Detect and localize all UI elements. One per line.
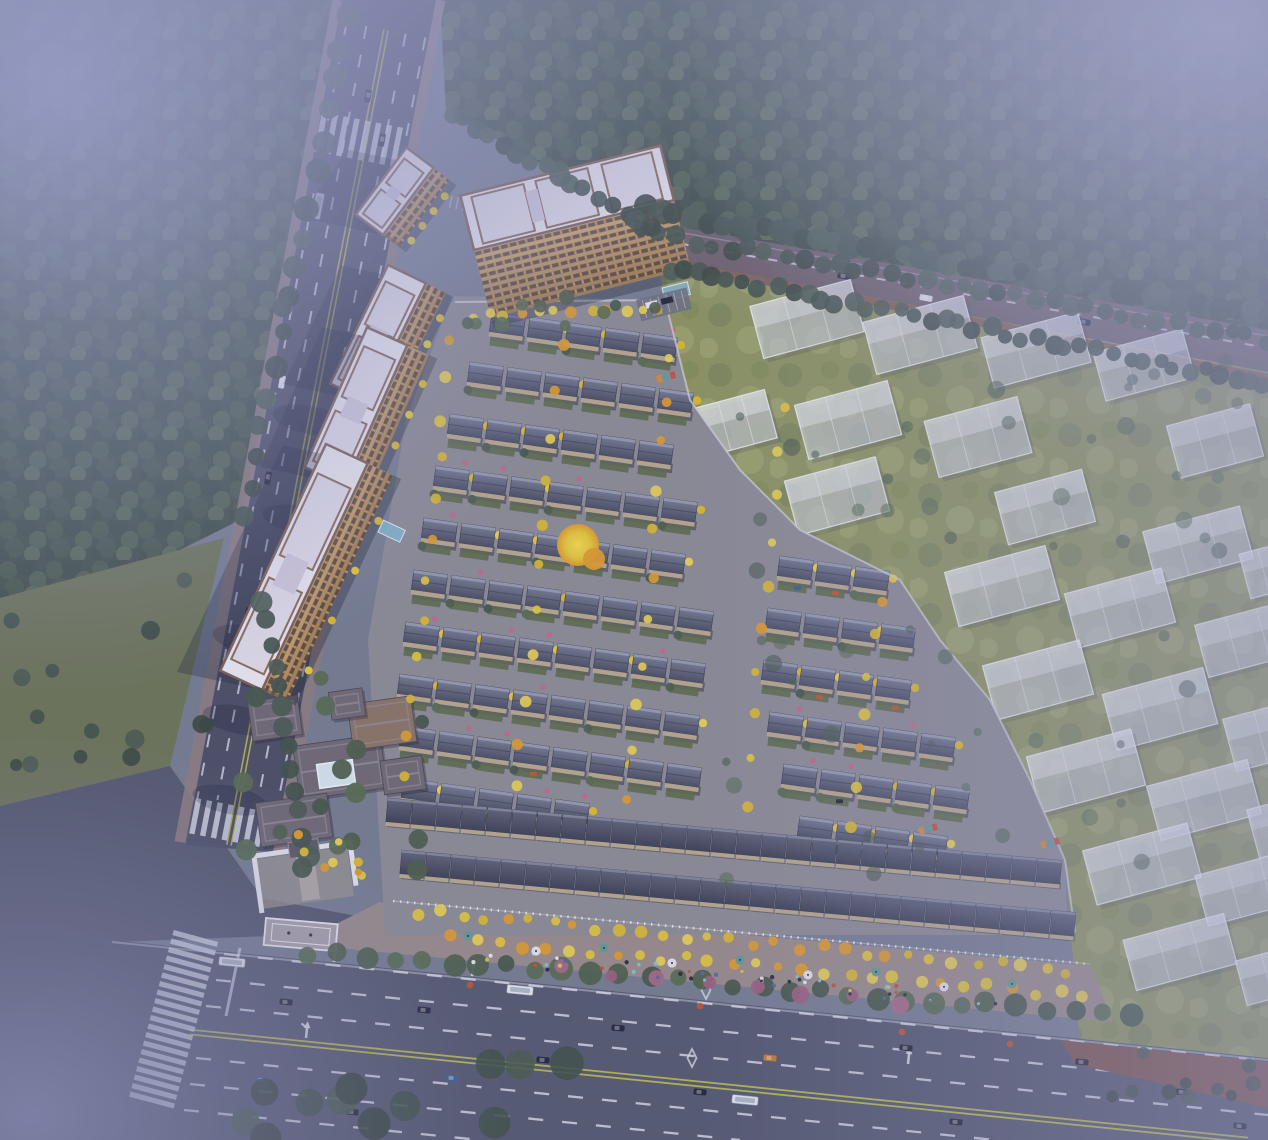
aerial-rendering-stage: [0, 0, 1268, 1140]
community-masterplan-rendering: [0, 0, 1268, 1140]
blue-tint: [0, 0, 1268, 1140]
atmosphere-fog: [0, 0, 1268, 1140]
